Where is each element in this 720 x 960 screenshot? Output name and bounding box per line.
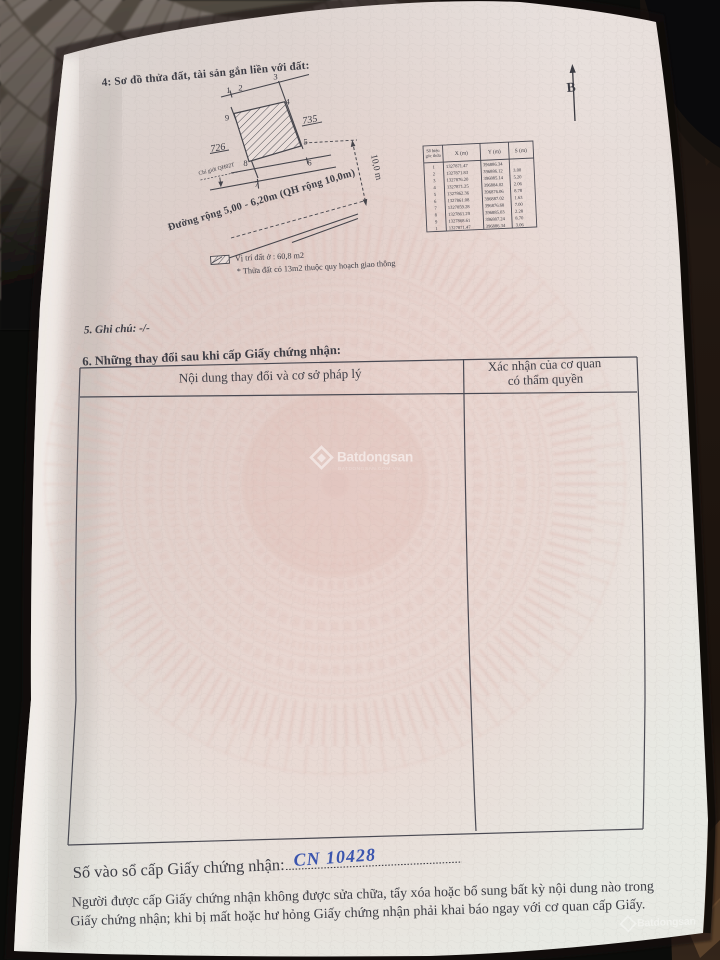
svg-text:396876.06: 396876.06 xyxy=(484,189,504,195)
svg-text:góc thửa: góc thửa xyxy=(425,153,440,159)
svg-text:3.06: 3.06 xyxy=(516,222,525,227)
svg-text:S (m): S (m) xyxy=(515,147,528,155)
svg-text:3.00: 3.00 xyxy=(513,167,522,172)
svg-text:7: 7 xyxy=(254,179,259,189)
svg-text:1327871.47: 1327871.47 xyxy=(446,163,469,169)
svg-text:8: 8 xyxy=(243,158,247,168)
svg-text:có thẩm quyền: có thẩm quyền xyxy=(508,371,584,388)
svg-text:396887.24: 396887.24 xyxy=(485,216,505,222)
svg-text:1327868.61: 1327868.61 xyxy=(448,218,471,224)
svg-text:5: 5 xyxy=(303,137,307,147)
svg-text:Y (m): Y (m) xyxy=(488,148,501,156)
svg-text:396886.34: 396886.34 xyxy=(483,161,503,167)
svg-text:2: 2 xyxy=(238,83,242,93)
svg-text:B: B xyxy=(566,79,576,95)
svg-text:Batdongsan: Batdongsan xyxy=(637,915,696,929)
svg-text:8.70: 8.70 xyxy=(515,215,524,220)
svg-text:1327861.08: 1327861.08 xyxy=(447,197,470,203)
svg-text:1.63: 1.63 xyxy=(514,195,523,200)
svg-text:1327871.25: 1327871.25 xyxy=(447,184,470,190)
svg-text:1327862.36: 1327862.36 xyxy=(447,190,470,196)
svg-text:396887.02: 396887.02 xyxy=(484,196,504,202)
svg-text:396886.34: 396886.34 xyxy=(486,223,506,229)
svg-text:Batdongsan: Batdongsan xyxy=(337,450,413,465)
svg-text:4: 4 xyxy=(285,97,290,107)
svg-text:2.06: 2.06 xyxy=(514,181,523,186)
svg-text:X (m): X (m) xyxy=(455,149,469,157)
svg-text:5. Ghi chú: -/-: 5. Ghi chú: -/- xyxy=(84,322,151,336)
svg-text:396884.02: 396884.02 xyxy=(484,182,504,188)
svg-text:2.28: 2.28 xyxy=(515,208,524,213)
svg-text:396885.14: 396885.14 xyxy=(483,175,503,181)
svg-text:9: 9 xyxy=(225,113,229,123)
svg-text:3: 3 xyxy=(273,72,277,82)
svg-text:6: 6 xyxy=(307,158,312,168)
svg-text:396876.68: 396876.68 xyxy=(485,202,505,208)
svg-text:1327871.83: 1327871.83 xyxy=(446,170,469,176)
svg-text:5.20: 5.20 xyxy=(513,174,522,179)
svg-text:BATDONGSAN.COM.VN: BATDONGSAN.COM.VN xyxy=(338,466,400,472)
svg-text:1327871.47: 1327871.47 xyxy=(449,224,472,230)
svg-text:396885.03: 396885.03 xyxy=(485,209,505,215)
svg-text:1327859.28: 1327859.28 xyxy=(448,204,471,210)
svg-text:8.78: 8.78 xyxy=(514,188,523,193)
svg-text:396886.12: 396886.12 xyxy=(483,168,503,174)
svg-text:7.00: 7.00 xyxy=(515,202,524,207)
svg-text:1327876.20: 1327876.20 xyxy=(446,177,469,183)
svg-text:1327861.29: 1327861.29 xyxy=(448,211,471,217)
svg-text:1: 1 xyxy=(226,85,230,95)
